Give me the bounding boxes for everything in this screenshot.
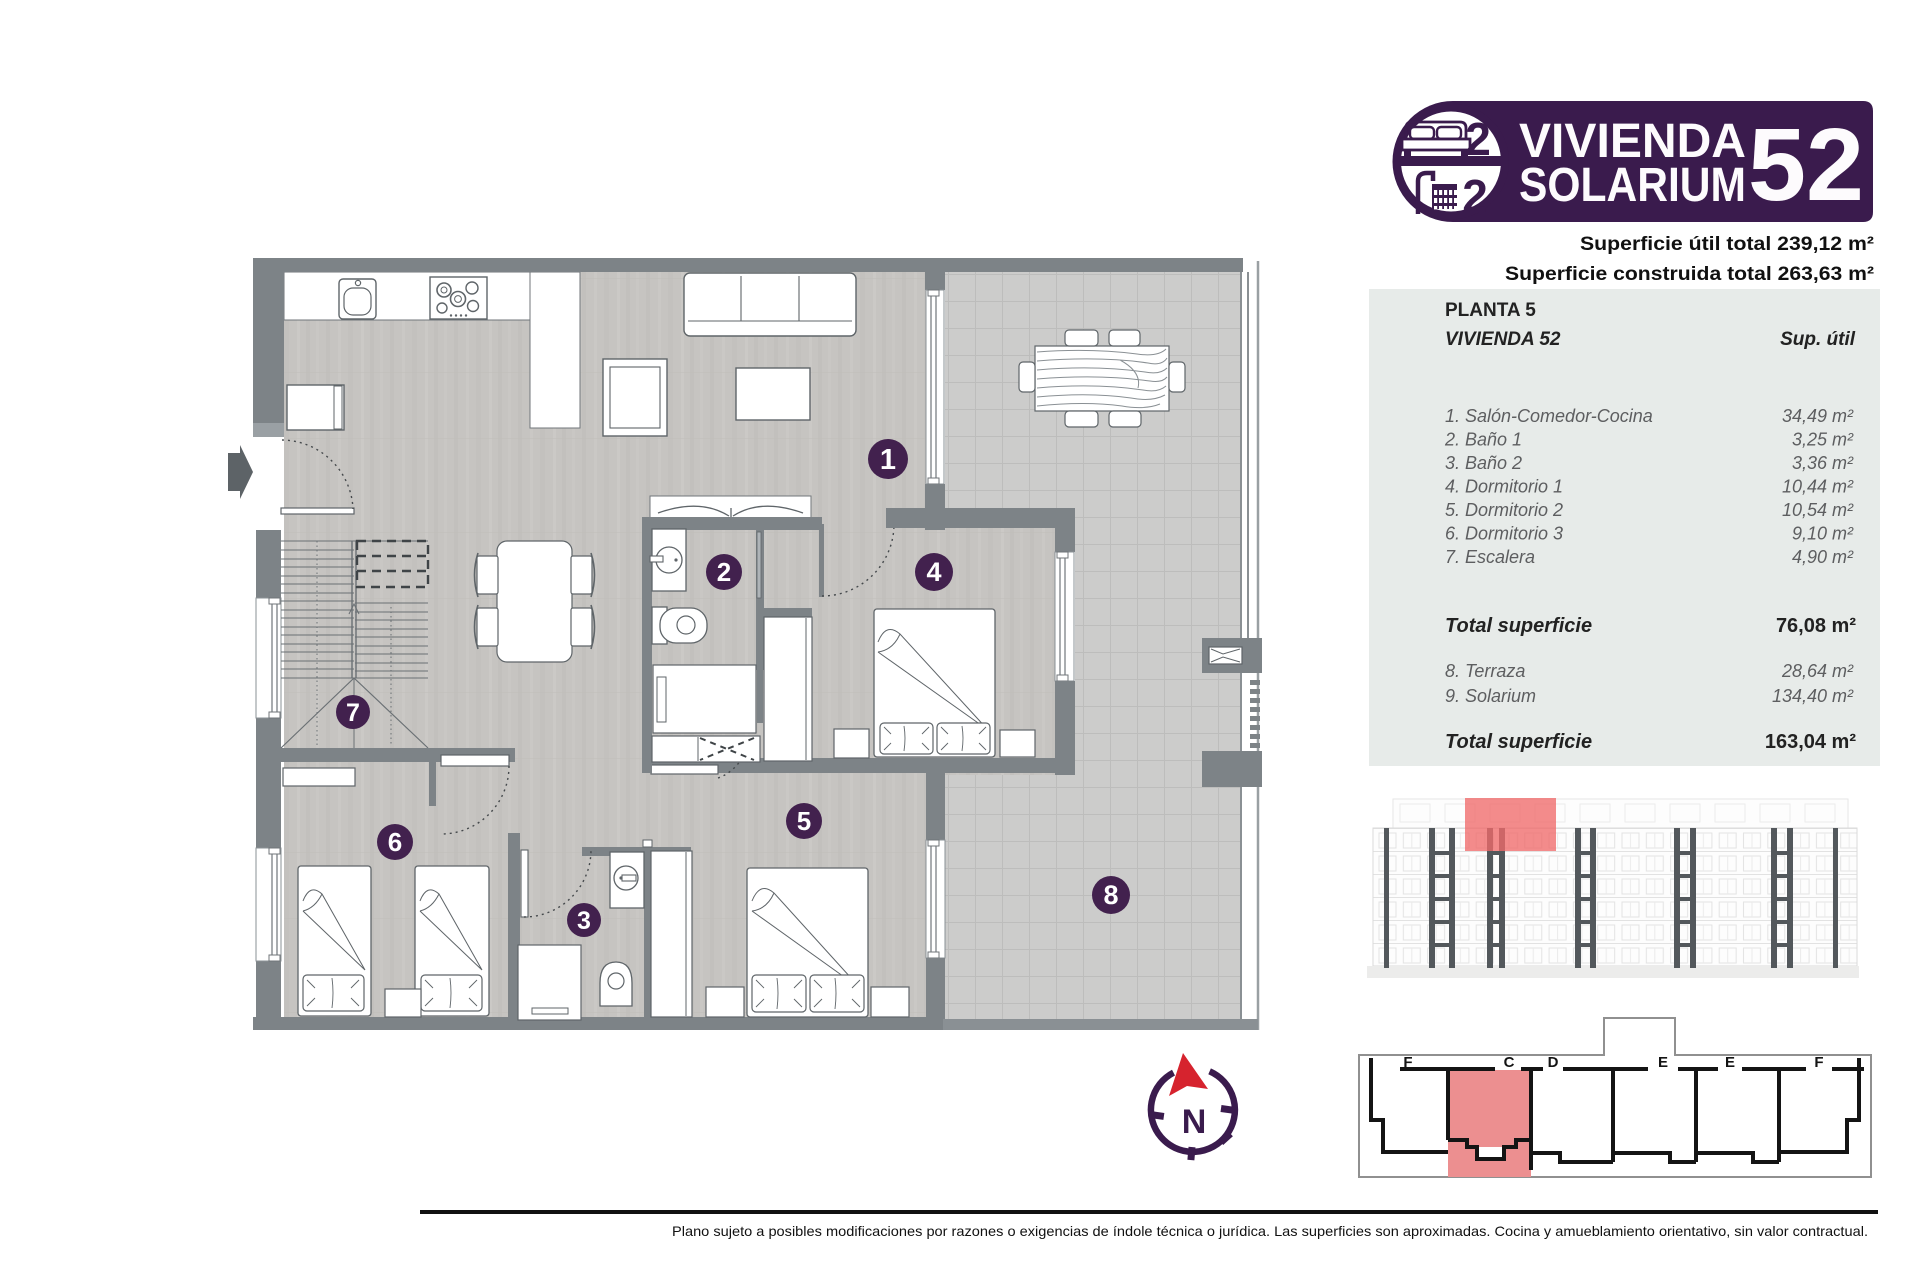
svg-text:8: 8 [1103, 880, 1118, 910]
svg-text:3. Baño 2: 3. Baño 2 [1445, 453, 1522, 473]
svg-text:VIVIENDA 52: VIVIENDA 52 [1445, 329, 1561, 350]
svg-text:C: C [1504, 1054, 1515, 1071]
svg-text:7: 7 [346, 699, 360, 727]
svg-text:4: 4 [926, 557, 941, 587]
svg-text:76,08 m²: 76,08 m² [1776, 615, 1856, 637]
svg-text:Total superficie: Total superficie [1445, 615, 1592, 637]
svg-text:1: 1 [880, 444, 896, 476]
svg-text:6. Dormitorio 3: 6. Dormitorio 3 [1445, 524, 1563, 544]
svg-text:PLANTA 5: PLANTA 5 [1445, 300, 1536, 321]
svg-text:7. Escalera: 7. Escalera [1445, 547, 1535, 567]
svg-text:6: 6 [388, 827, 402, 857]
svg-text:Sup. útil: Sup. útil [1780, 329, 1856, 350]
svg-text:E: E [1725, 1054, 1735, 1071]
svg-text:28,64 m²: 28,64 m² [1781, 661, 1854, 681]
svg-text:3,36 m²: 3,36 m² [1792, 453, 1854, 473]
svg-text:8. Terraza: 8. Terraza [1445, 661, 1525, 681]
svg-text:2: 2 [1465, 113, 1491, 165]
svg-text:10,44 m²: 10,44 m² [1782, 477, 1854, 497]
svg-text:9,10 m²: 9,10 m² [1792, 524, 1854, 544]
svg-text:F: F [1403, 1054, 1412, 1071]
svg-text:134,40 m²: 134,40 m² [1772, 686, 1854, 706]
svg-text:2: 2 [1462, 170, 1488, 222]
svg-text:Superficie construida total 26: Superficie construida total 263,63 m² [1505, 264, 1874, 285]
svg-text:3,25 m²: 3,25 m² [1792, 430, 1854, 450]
svg-text:N: N [1182, 1103, 1207, 1141]
svg-text:5. Dormitorio 2: 5. Dormitorio 2 [1445, 500, 1563, 520]
svg-text:Plano sujeto a posibles modifi: Plano sujeto a posibles modificaciones p… [672, 1223, 1868, 1239]
svg-text:52: 52 [1748, 107, 1864, 222]
svg-text:4,90 m²: 4,90 m² [1792, 547, 1854, 567]
svg-text:2: 2 [717, 557, 731, 587]
svg-text:9. Solarium: 9. Solarium [1445, 686, 1536, 706]
svg-text:Superficie útil total 239,12 m: Superficie útil total 239,12 m² [1580, 234, 1874, 255]
svg-text:E: E [1658, 1054, 1668, 1071]
svg-text:34,49 m²: 34,49 m² [1782, 406, 1854, 426]
svg-text:SOLARIUM: SOLARIUM [1519, 159, 1746, 212]
svg-text:10,54 m²: 10,54 m² [1782, 500, 1854, 520]
svg-text:163,04 m²: 163,04 m² [1765, 731, 1857, 753]
svg-text:1. Salón-Comedor-Cocina: 1. Salón-Comedor-Cocina [1445, 406, 1653, 426]
svg-text:5: 5 [797, 806, 811, 836]
svg-text:4. Dormitorio 1: 4. Dormitorio 1 [1445, 477, 1563, 497]
svg-text:2. Baño 1: 2. Baño 1 [1444, 430, 1522, 450]
svg-text:3: 3 [577, 907, 591, 935]
svg-text:F: F [1814, 1054, 1823, 1071]
svg-text:Total superficie: Total superficie [1445, 731, 1592, 753]
svg-text:D: D [1548, 1054, 1559, 1071]
